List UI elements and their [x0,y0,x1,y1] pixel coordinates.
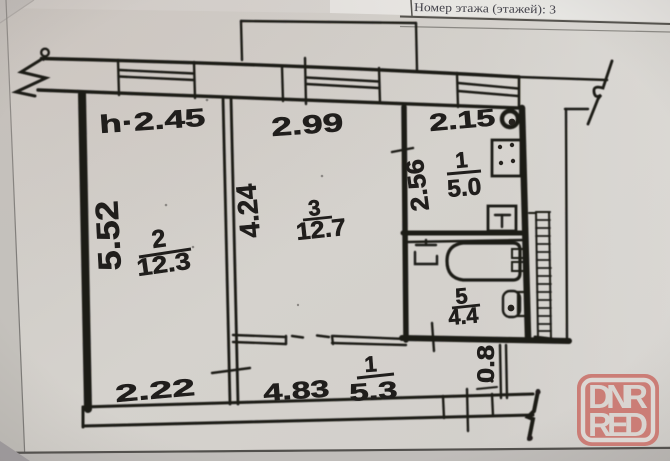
svg-text:12.7: 12.7 [295,214,348,246]
svg-text:RED: RED [588,406,648,443]
svg-text:Номер этажа (этажей): 3: Номер этажа (этажей): 3 [414,0,556,16]
svg-text:4.24: 4.24 [230,182,266,239]
svg-text:4.83: 4.83 [263,375,331,407]
svg-text:1: 1 [364,351,378,377]
svg-text:5.0: 5.0 [446,173,482,203]
svg-text:2.15: 2.15 [428,104,496,137]
svg-text:5.52: 5.52 [88,200,128,272]
svg-text:2.99: 2.99 [270,107,344,142]
svg-text:0.8: 0.8 [473,345,500,383]
svg-text:4.4: 4.4 [447,302,480,330]
svg-text:5.3: 5.3 [349,377,399,407]
svg-text:1: 1 [454,147,468,173]
